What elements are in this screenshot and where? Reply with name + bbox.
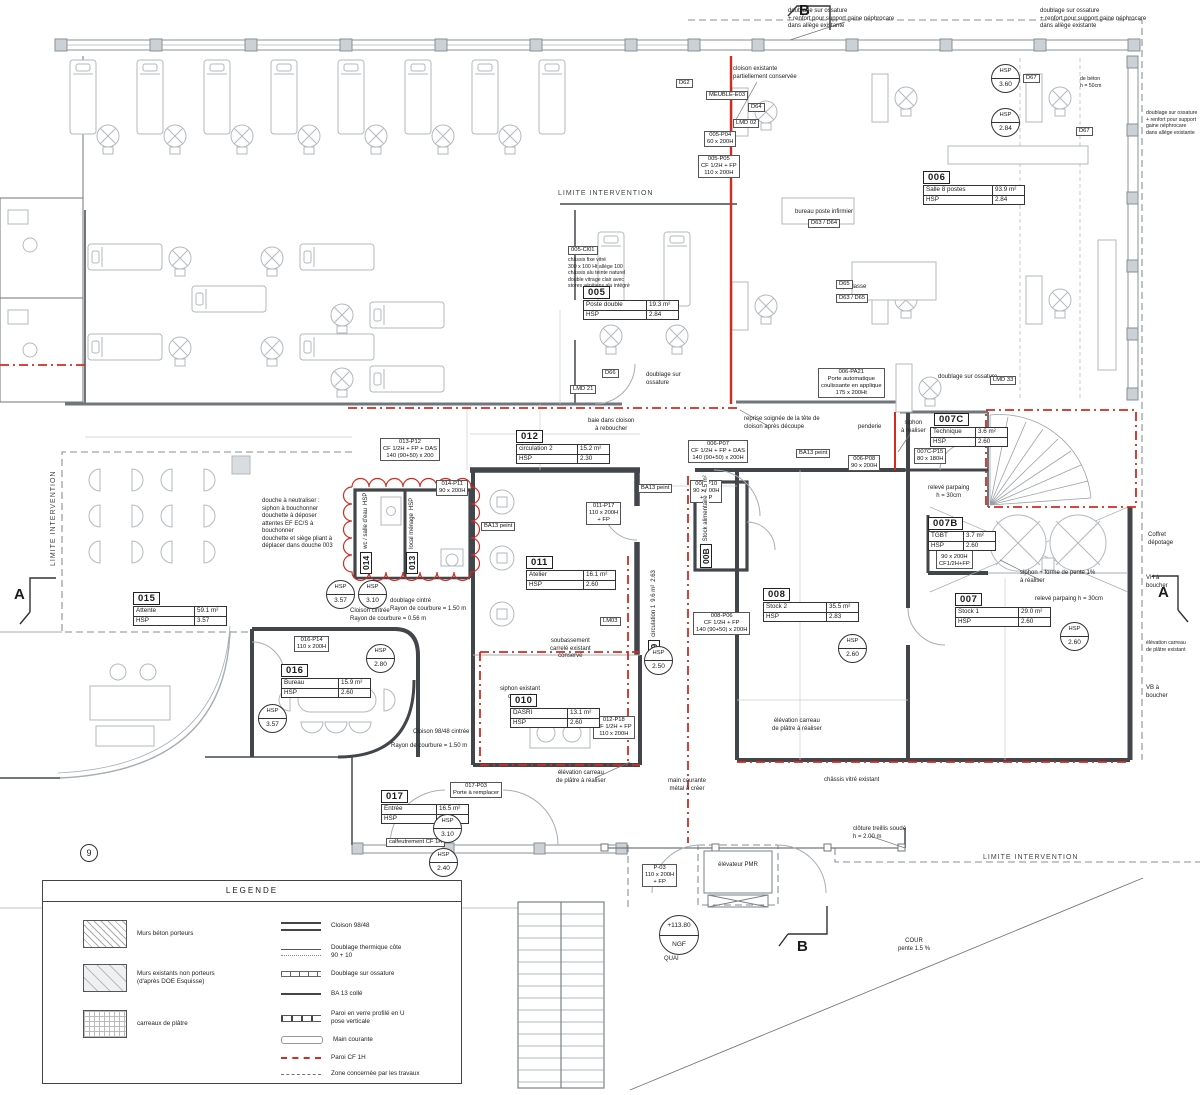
annotation: doublage cintré Rayon de courbure = 1.50… [390, 598, 466, 613]
annotation: VB à boucher [1146, 685, 1168, 700]
hsp-bubble: HSP3.10 [433, 814, 462, 843]
tag: 014-P11 90 x 200H [436, 480, 468, 496]
legend: LEGENDE Murs béton porteurs Murs existan… [42, 880, 462, 1084]
line-sample-doublage-thermique [281, 949, 321, 956]
tag: LMD 33 [990, 376, 1016, 385]
annotation: bureau poste infirmier [795, 209, 853, 217]
hsp-bubble: HSP2.80 [366, 644, 395, 673]
annotation: doublage sur ossature + renfort pour sup… [1040, 8, 1146, 31]
room-table-005: Poste double19.3 m² HSP2.84 [583, 300, 679, 320]
room-num-017: 017 [381, 790, 408, 803]
room-num-015: 015 [133, 592, 160, 605]
tag: 008-P06 CF 1/2H + FP 140 (90+50) x 200H [693, 612, 750, 635]
room-table-016: Bureau15.9 m² HSP2.60 [281, 678, 371, 698]
line-sample-main-courante [281, 1036, 323, 1044]
annotation: châssis vitré existant [824, 777, 879, 785]
tag: D67 [1076, 127, 1093, 136]
annotation: élévation carreau de plâtre à réaliser [556, 770, 606, 785]
hsp-bubble: HSP3.60 [991, 64, 1020, 93]
sheet-bubble-9: 9 [80, 844, 98, 862]
annotation: doublage sur ossature [646, 372, 681, 387]
annotation: soubassement carrelé existant conservé [550, 638, 591, 661]
room-label-014: 014 wc / salle d'eau HSP [360, 493, 372, 574]
floor-plan: 005 Poste double19.3 m² HSP2.84 006 Sall… [0, 0, 1200, 1095]
room-num-016: 016 [281, 664, 308, 677]
room-num-005: 005 [583, 286, 610, 299]
tag: 007C-P15 80 x 180H [914, 448, 946, 464]
annotation: reprise soignée de la tête de cloison ap… [744, 416, 820, 431]
tag: MEUBLE-E03 [706, 91, 748, 100]
room-num-006: 006 [923, 171, 950, 184]
section-b-top: B [799, 2, 810, 19]
line-sample-zone-travaux [281, 1074, 321, 1075]
annotation: siphon + forme de pente 1% à réaliser [1020, 570, 1095, 585]
stairs [518, 902, 604, 1088]
swatch-murs-beton [83, 920, 127, 948]
annotation: Coffret dépotage [1148, 532, 1173, 547]
room-num-007c: 007C [934, 413, 969, 426]
elevator-label: élévateur PMR [706, 862, 770, 870]
tag: 013-P12 CF 1/2H + FP + DAS 140 (90+50) x… [380, 438, 440, 461]
limite-intervention-bottom: LIMITE INTERVENTION [983, 854, 1079, 861]
hsp-bubble: HSP2.84 [991, 108, 1020, 137]
hsp-bubble: HSP2.60 [1060, 622, 1089, 651]
hsp-bubble: HSP3.57 [258, 704, 287, 733]
line-sample-doublage-ossature [281, 971, 321, 977]
tag: 005-P05 CF 1/2H + FP 110 x 200H [698, 155, 740, 178]
elevator [704, 851, 772, 907]
room-table-012: circulation 215.2 m² HSP2.30 [516, 444, 610, 464]
tag: 016-P14 110 x 200H [294, 636, 329, 652]
section-b-bottom: B [797, 938, 808, 955]
annotation: élévation carreau de plâtre à réaliser [772, 718, 822, 733]
line-sample-paroi-verre [281, 1015, 321, 1022]
room-table-007c: Technique3.6 m² HSP2.60 [930, 427, 1008, 447]
hsp-bubble: HSP3.10 [358, 580, 387, 609]
line-sample-ba13 [281, 993, 321, 995]
section-a-left: A [14, 586, 25, 603]
tag: 006-P07 CF 1/2H + FP + DAS 140 (90+50) x… [688, 440, 748, 463]
annotation: baie dans cloison à reboucher [588, 418, 634, 433]
annotation: relevé parpaing h = 30cm [1035, 596, 1103, 604]
tag: 005-Cl01 [568, 246, 598, 255]
room-table-008: Stock 235.5 m² HSP2.83 [763, 602, 859, 622]
room-table-007: Stock 129.0 m² HSP2.60 [955, 607, 1051, 627]
annotation: châssis fixe vitré 300 x 100 Ht allège 1… [568, 257, 630, 290]
annotation: de béton h = 50cm [1080, 76, 1101, 89]
room-num-012: 012 [516, 430, 543, 443]
room-num-008: 008 [763, 588, 790, 601]
hsp-bubble: HSP2.60 [838, 634, 867, 663]
room-label-00b: 00B Stock alimentaire 4.5 m² [700, 475, 712, 568]
room-label-013: 013 local ménage HSP [406, 498, 418, 574]
tag: 005-P04 60 x 200H [704, 131, 736, 147]
annotation: main courante métal à créer [668, 778, 706, 793]
line-sample-paroi-cf [281, 1057, 321, 1059]
legend-title: LEGENDE [43, 881, 461, 902]
tag: LMD 21 [570, 385, 596, 394]
tag: 006-PA21 Porte automatique coulissante e… [818, 368, 885, 398]
tag: D63 / D64 [808, 219, 840, 228]
tag: BA13 peint [481, 522, 515, 531]
cour-label: COUR pente 1.5 % [898, 938, 930, 953]
tag: 017-P03 Porte à remplacer [450, 782, 502, 798]
room-num-010: 010 [510, 694, 537, 707]
limite-intervention-left: LIMITE INTERVENTION [50, 471, 57, 567]
tag: D62 [676, 79, 693, 88]
annotation: Rayon de courbure = 1.50 m [391, 743, 467, 751]
annotation: douche à neutraliser : siphon à bouchonn… [262, 498, 333, 551]
annotation: élévation carreau de plâtre existant [1146, 640, 1186, 653]
room-table-015: Attente59.1 m² HSP3.57 [133, 606, 227, 626]
tag: LMD 02 [733, 119, 759, 128]
annotation: penderie [858, 424, 881, 432]
annotation: relevé parpaing h = 30cm [928, 485, 969, 500]
room-table-011: Atelier16.1 m² HSP2.60 [526, 570, 616, 590]
level-marker: +113.80NGF [659, 915, 699, 955]
room-table-007b: TGBT3.7 m² HSP2.60 [928, 531, 996, 551]
tag: 006-P08 90 x 200H [848, 455, 880, 471]
hsp-bubble: HSP2.40 [429, 848, 458, 877]
tag: BA13 peint [638, 484, 672, 493]
tag: BA13 peint [796, 449, 830, 458]
tag: LM03 [600, 617, 621, 626]
tag: D63 / D65 [836, 294, 868, 303]
annotation: siphon à réaliser [901, 420, 926, 435]
swatch-carreaux-platre [83, 1010, 127, 1038]
annotation: clôture treillis soudé h = 2.00 m [853, 826, 906, 841]
room-table-006: Salle 8 postes93.9 m² HSP2.84 [923, 185, 1025, 205]
section-a-right: A [1158, 584, 1169, 601]
tag: P-03 110 x 200H + FP [642, 864, 677, 887]
annotation: doublage sur ossature [938, 374, 997, 382]
annotation: doublage sur ossature + renfort pour sup… [1146, 110, 1198, 136]
limite-intervention-top: LIMITE INTERVENTION [558, 190, 654, 197]
room-table-010: DASRI13.1 m² HSP2.60 [510, 708, 600, 728]
quai-label: QUAI [664, 956, 679, 964]
tag: D66 [602, 369, 619, 378]
room-num-011: 011 [526, 556, 553, 569]
room-num-007b: 007B [928, 517, 963, 530]
line-sample-cloison [281, 922, 321, 931]
swatch-murs-existants [83, 964, 127, 992]
hsp-bubble: HSP3.57 [326, 580, 355, 609]
hsp-bubble: HSP2.50 [644, 646, 673, 675]
annotation: cloison existante partiellement conservé… [733, 66, 797, 81]
annotation: Cloison 98/48 cintrée [413, 729, 469, 737]
room-num-007: 007 [955, 593, 982, 606]
tag: D65 [836, 280, 853, 289]
tag: D64 [748, 103, 765, 112]
tag: 011-P17 110 x 200H + FP [586, 502, 621, 525]
tag: D67 [1023, 74, 1040, 83]
